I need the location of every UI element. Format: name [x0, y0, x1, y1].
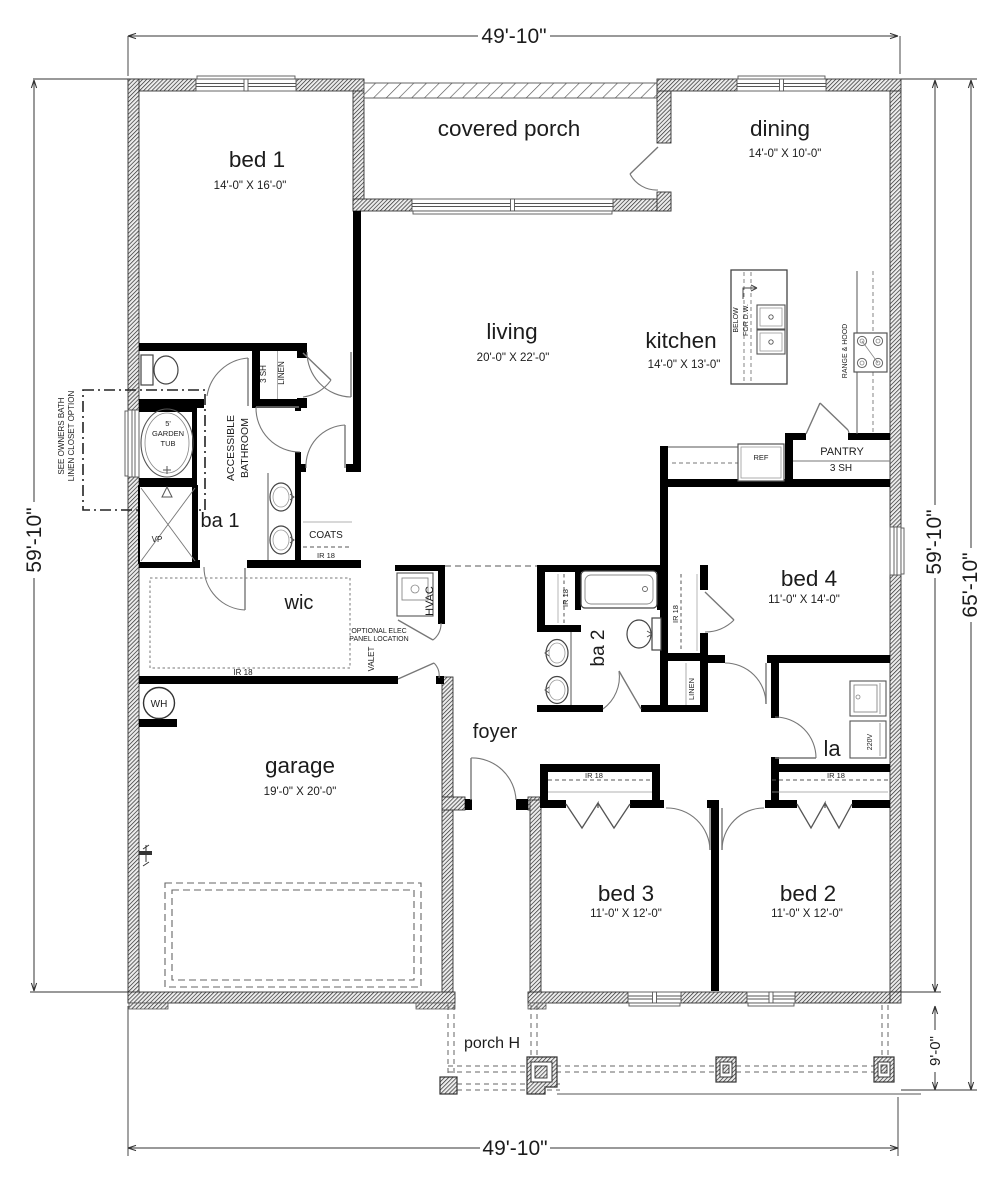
- svg-text:la: la: [823, 736, 841, 761]
- svg-text:5': 5': [165, 419, 171, 428]
- svg-text:20'-0" X 22'-0": 20'-0" X 22'-0": [477, 352, 550, 364]
- svg-text:porch H: porch H: [464, 1035, 520, 1052]
- svg-text:3 SH: 3 SH: [259, 365, 268, 383]
- svg-text:LINEN: LINEN: [277, 361, 286, 385]
- svg-text:kitchen: kitchen: [645, 328, 716, 353]
- svg-text:LINEN: LINEN: [687, 678, 696, 700]
- svg-text:LINEN CLOSET OPTION: LINEN CLOSET OPTION: [67, 391, 76, 482]
- svg-text:ACCESSIBLE: ACCESSIBLE: [225, 415, 237, 481]
- svg-text:WH: WH: [151, 699, 168, 710]
- svg-text:14'-0" X 10'-0": 14'-0" X 10'-0": [749, 148, 822, 160]
- svg-text:IR 18: IR 18: [561, 589, 570, 607]
- svg-text:OPTIONAL ELEC: OPTIONAL ELEC: [351, 628, 406, 635]
- svg-text:3 SH: 3 SH: [830, 463, 852, 474]
- svg-text:bed 3: bed 3: [598, 881, 654, 906]
- svg-text:garage: garage: [265, 753, 335, 778]
- svg-text:PANTRY: PANTRY: [820, 446, 864, 458]
- svg-text:65'-10": 65'-10": [959, 552, 982, 617]
- svg-text:REF: REF: [754, 453, 769, 462]
- svg-text:SEE OWNERS BATH: SEE OWNERS BATH: [57, 397, 66, 474]
- svg-text:IR 18: IR 18: [671, 605, 680, 623]
- svg-text:220V: 220V: [867, 734, 874, 751]
- svg-text:49'-10": 49'-10": [481, 25, 546, 48]
- svg-text:11'-0" X 12'-0": 11'-0" X 12'-0": [771, 908, 843, 920]
- svg-text:IR 18: IR 18: [233, 668, 253, 677]
- svg-text:BATHROOM: BATHROOM: [239, 418, 251, 478]
- svg-text:HVAC: HVAC: [424, 586, 436, 616]
- svg-text:IR 18: IR 18: [317, 551, 335, 560]
- svg-text:IR 18: IR 18: [827, 771, 845, 780]
- svg-text:49'-10": 49'-10": [482, 1137, 547, 1160]
- svg-text:TUB: TUB: [161, 439, 176, 448]
- svg-text:9'-0": 9'-0": [927, 1036, 944, 1066]
- svg-text:FOR D.W.: FOR D.W.: [743, 304, 750, 336]
- svg-text:ba 2: ba 2: [588, 630, 609, 667]
- svg-text:14'-0" X 13'-0": 14'-0" X 13'-0": [648, 359, 721, 371]
- svg-text:11'-0" X 12'-0": 11'-0" X 12'-0": [590, 908, 662, 920]
- svg-text:wic: wic: [284, 592, 314, 614]
- svg-text:IR 18: IR 18: [585, 771, 603, 780]
- svg-text:PANEL LOCATION: PANEL LOCATION: [349, 636, 408, 643]
- svg-text:RANGE & HOOD: RANGE & HOOD: [842, 324, 849, 378]
- svg-text:covered porch: covered porch: [438, 116, 581, 141]
- svg-text:11'-0" X 14'-0": 11'-0" X 14'-0": [768, 594, 840, 606]
- svg-text:BELOW: BELOW: [733, 307, 740, 333]
- svg-text:VALET: VALET: [367, 647, 376, 672]
- svg-text:bed 2: bed 2: [780, 881, 836, 906]
- svg-text:foyer: foyer: [473, 721, 518, 743]
- svg-text:COATS: COATS: [309, 530, 343, 541]
- svg-text:GARDEN: GARDEN: [152, 429, 184, 438]
- svg-text:bed 1: bed 1: [229, 147, 285, 172]
- svg-text:59'-10": 59'-10": [923, 509, 946, 574]
- svg-text:19'-0" X 20'-0": 19'-0" X 20'-0": [264, 786, 337, 798]
- svg-text:bed 4: bed 4: [781, 566, 837, 591]
- svg-text:dining: dining: [750, 116, 810, 141]
- svg-text:living: living: [486, 319, 537, 344]
- svg-text:ba 1: ba 1: [201, 510, 240, 532]
- svg-text:VP: VP: [152, 535, 163, 544]
- svg-text:14'-0" X 16'-0": 14'-0" X 16'-0": [214, 180, 287, 192]
- svg-text:59'-10": 59'-10": [23, 507, 46, 572]
